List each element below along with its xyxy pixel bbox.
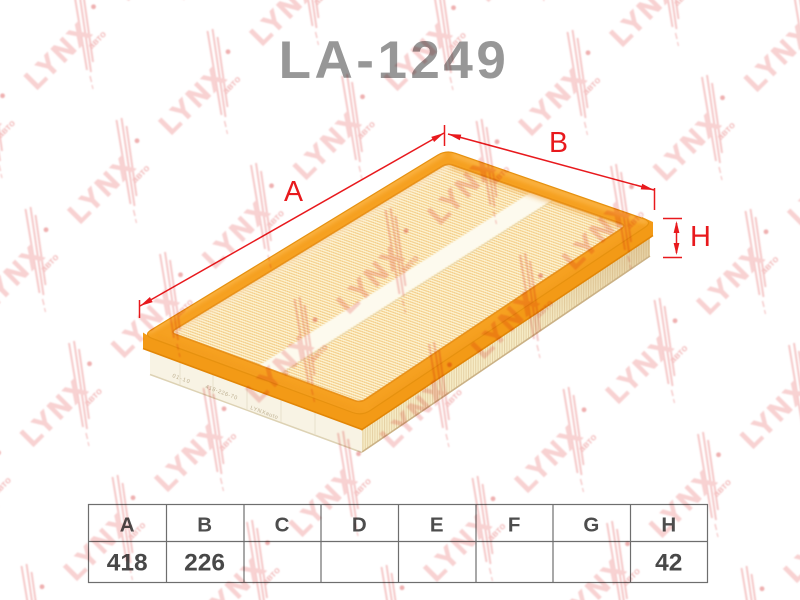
svg-text:B: B xyxy=(197,514,212,537)
svg-text:D: D xyxy=(352,514,367,537)
svg-text:A: A xyxy=(284,176,303,208)
svg-text:F: F xyxy=(508,514,521,537)
svg-text:E: E xyxy=(430,514,444,537)
svg-text:H: H xyxy=(690,221,711,253)
svg-text:B: B xyxy=(549,127,568,159)
svg-text:418: 418 xyxy=(107,550,148,577)
svg-text:G: G xyxy=(583,514,599,537)
svg-text:226: 226 xyxy=(184,550,225,577)
svg-text:42: 42 xyxy=(655,550,682,577)
